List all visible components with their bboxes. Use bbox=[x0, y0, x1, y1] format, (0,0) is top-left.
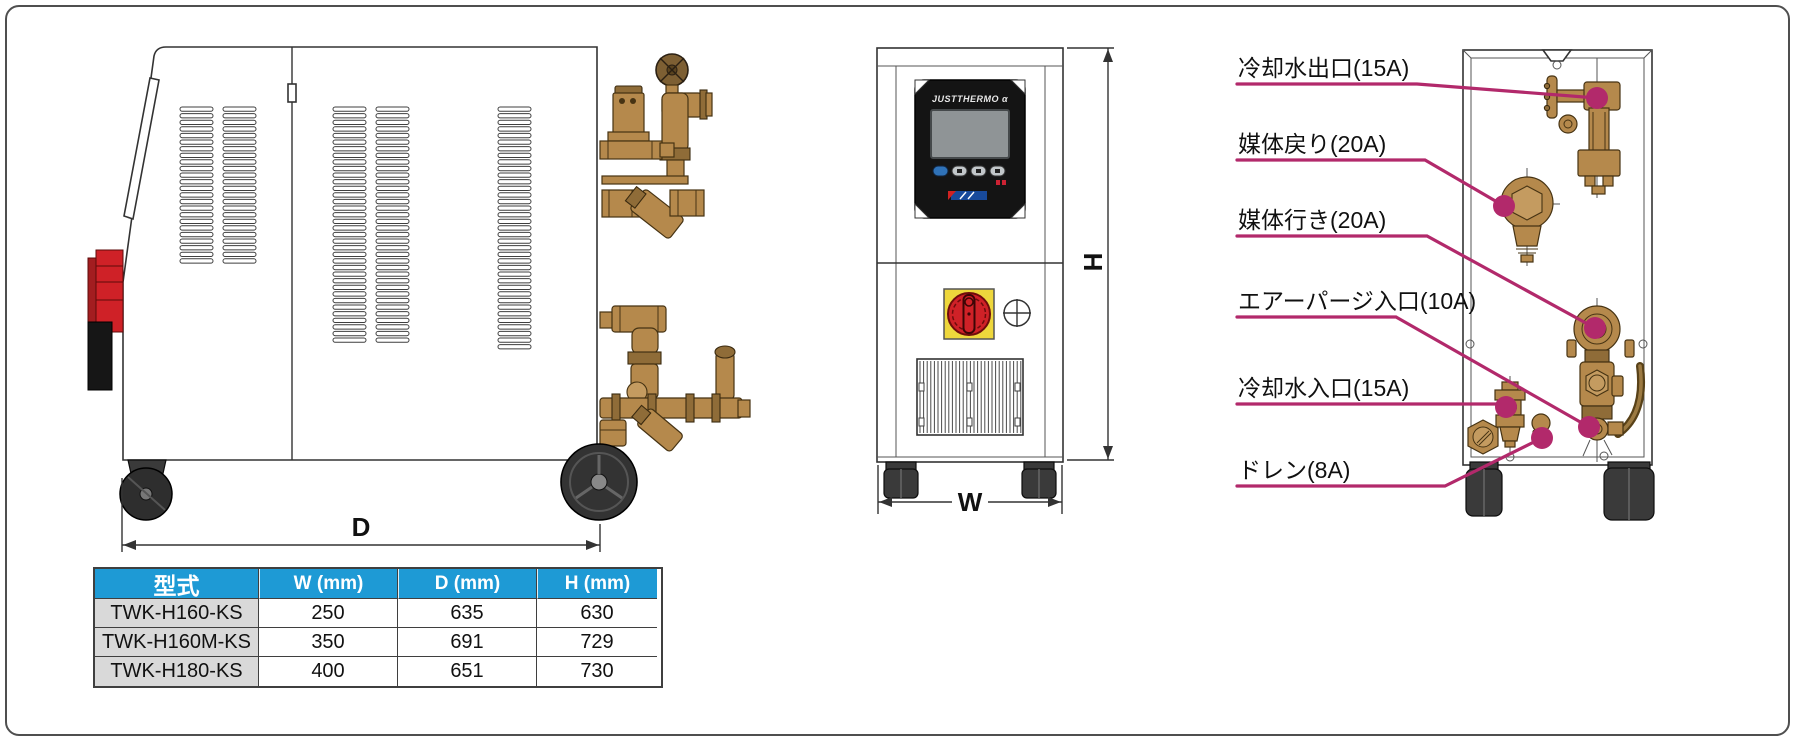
label-medium-supply: 媒体行き(20A) bbox=[1238, 207, 1386, 233]
table-header-d: D (mm) bbox=[398, 569, 537, 599]
label-cooling-water-outlet: 冷却水出口(15A) bbox=[1238, 55, 1409, 81]
vent-slots-col5 bbox=[498, 107, 531, 349]
callout-dot-medium-supply bbox=[1584, 317, 1606, 339]
front-caster-left bbox=[884, 462, 918, 498]
status-mark bbox=[996, 180, 1000, 185]
table-header-w: W (mm) bbox=[259, 569, 398, 599]
side-caster-right bbox=[561, 444, 637, 520]
table-cell-d: 651 bbox=[398, 657, 537, 686]
status-mark bbox=[1002, 180, 1006, 185]
brand-logo bbox=[948, 191, 987, 200]
dimension-height: H bbox=[1067, 48, 1114, 460]
table-cell-h: 730 bbox=[537, 657, 657, 686]
side-caster-left bbox=[120, 460, 172, 520]
callout-dot-air-purge bbox=[1578, 416, 1600, 438]
spec-table: 型式 W (mm) D (mm) H (mm) TWK-H160-KS 250 … bbox=[93, 567, 663, 688]
back-view bbox=[1463, 50, 1654, 520]
label-air-purge-inlet: エアーパージ入口(10A) bbox=[1238, 288, 1476, 314]
power-connector bbox=[88, 250, 123, 332]
side-latch bbox=[288, 84, 296, 102]
table-cell-h: 630 bbox=[537, 599, 657, 628]
side-view: D bbox=[88, 47, 750, 552]
brand-text: JUSTTHERMO α bbox=[932, 94, 1008, 104]
table-cell-h: 729 bbox=[537, 628, 657, 657]
cable-box bbox=[88, 322, 112, 390]
table-cell-w: 350 bbox=[259, 628, 398, 657]
front-caster-right bbox=[1022, 462, 1056, 498]
table-cell-d: 691 bbox=[398, 628, 537, 657]
dimension-depth: D bbox=[122, 478, 600, 552]
table-header-h: H (mm) bbox=[537, 569, 657, 599]
lcd-screen bbox=[931, 110, 1009, 158]
back-caster-left bbox=[1466, 462, 1502, 516]
side-piping-upper bbox=[600, 54, 712, 240]
width-label: W bbox=[958, 487, 983, 517]
table-cell-model: TWK-H180-KS bbox=[95, 657, 259, 686]
callout-dot-cooling-out bbox=[1586, 87, 1608, 109]
label-cooling-water-inlet: 冷却水入口(15A) bbox=[1238, 375, 1409, 401]
side-piping-lower bbox=[600, 306, 750, 453]
table-cell-w: 250 bbox=[259, 599, 398, 628]
table-cell-model: TWK-H160M-KS bbox=[95, 628, 259, 657]
height-label: H bbox=[1078, 253, 1108, 272]
main-power-switch[interactable] bbox=[944, 289, 994, 339]
table-cell-model: TWK-H160-KS bbox=[95, 599, 259, 628]
callout-dot-cooling-in bbox=[1495, 396, 1517, 418]
panel-power-button[interactable] bbox=[933, 166, 948, 176]
hex-plug bbox=[1468, 420, 1498, 454]
table-header-model: 型式 bbox=[95, 569, 259, 599]
control-panel: JUSTTHERMO α bbox=[915, 80, 1025, 218]
depth-label: D bbox=[352, 512, 371, 542]
back-caster-right bbox=[1604, 462, 1654, 520]
label-drain: ドレン(8A) bbox=[1238, 457, 1350, 483]
callout-dot-drain bbox=[1531, 427, 1553, 449]
drawing-sheet: D JUSTTHERMO α bbox=[0, 0, 1793, 739]
table-cell-w: 400 bbox=[259, 657, 398, 686]
front-view: JUSTTHERMO α bbox=[877, 48, 1114, 517]
front-vent-grille bbox=[917, 359, 1023, 435]
label-medium-return: 媒体戻り(20A) bbox=[1238, 131, 1386, 157]
callout-dot-medium-return bbox=[1493, 195, 1515, 217]
table-cell-d: 635 bbox=[398, 599, 537, 628]
